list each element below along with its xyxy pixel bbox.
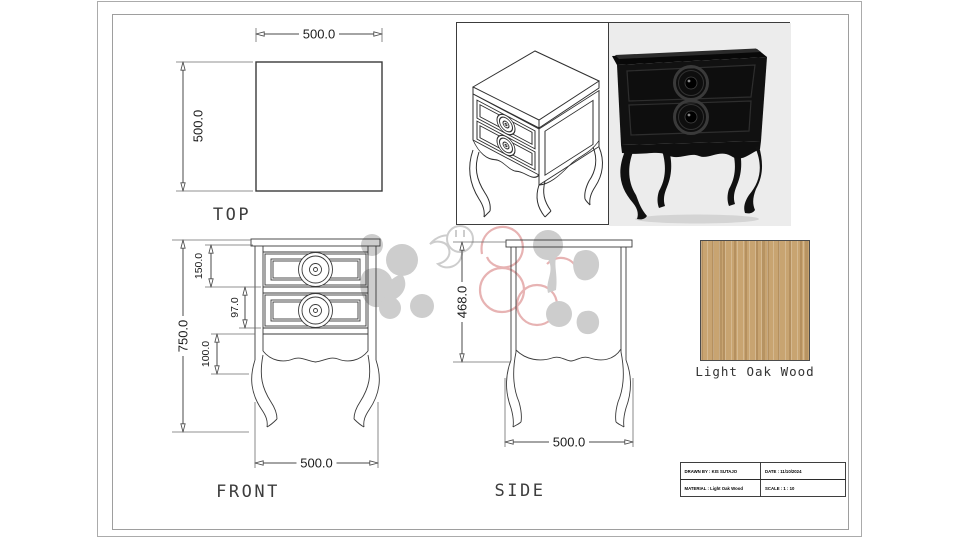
top-depth-dim: 500.0 [191,110,206,143]
title-block-material: MATERIAL : Light Oak Wood [685,486,744,491]
front-drawer-bottom-dim: 97.0 [229,297,241,318]
top-view-label: TOP [213,205,251,225]
product-render-lineart [457,23,609,224]
product-photos [456,22,790,225]
front-furniture-outline [251,239,380,427]
front-apron-dim: 100.0 [200,341,212,367]
front-height-dim: 750.0 [176,320,191,353]
side-furniture-outline [506,240,632,427]
side-view-label: SIDE [495,481,546,501]
product-photo-black [609,23,791,224]
title-block-drawn-by: DRAWN BY : KIS SUTAJO [685,469,738,474]
side-depth-dim: 500.0 [553,435,586,450]
front-view-label: FRONT [216,482,280,502]
title-block-scale: SCALE : 1 : 10 [765,486,795,491]
title-block: DRAWN BY : KIS SUTAJO DATE : 11/10/2024 … [680,462,846,497]
material-swatch-label: Light Oak Wood [690,364,820,379]
side-height-dim: 468.0 [455,286,470,319]
drawing-sheet: { "colors": { "wood_base": "#C8A471", "w… [0,0,960,540]
front-view-drawing: 750.0 150.0 97.0 100.0 500.0 FRONT [165,230,400,508]
front-drawer-top-dim: 150.0 [193,253,205,279]
side-view-drawing: 468.0 500.0 SIDE [440,230,660,508]
material-swatch [700,240,810,361]
top-width-dim: 500.0 [303,27,336,42]
front-width-dim: 500.0 [300,456,333,471]
top-view-drawing: 500.0 500.0 TOP [165,20,400,232]
title-block-date: DATE : 11/10/2024 [765,469,802,474]
